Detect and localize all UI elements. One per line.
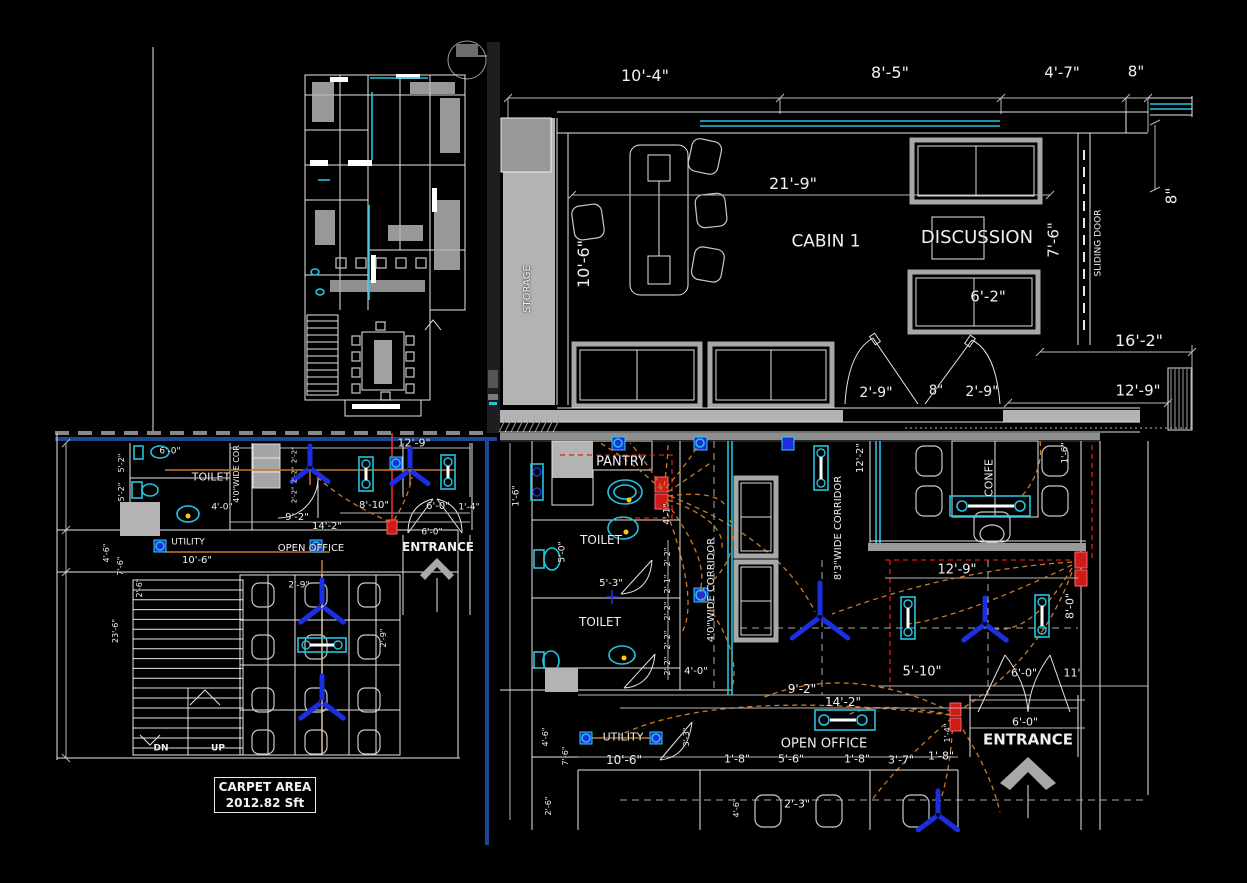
entrance-arrow: [420, 558, 454, 580]
sofa: [912, 140, 1040, 202]
dim-2-9-c: 2'-9": [288, 582, 309, 591]
dim-2-2-c2: 2'-2": [292, 467, 299, 484]
dim-4-6-d1: 4'-6": [733, 799, 741, 818]
dim-5-0-d: 5'-0": [559, 541, 568, 562]
room-label-storage: STORAGE: [523, 265, 533, 313]
ceiling-fans: [292, 446, 1006, 830]
room-label-entrance-c: ENTRANCE: [402, 541, 474, 553]
dim-2-3-d: 2'-3": [784, 799, 810, 810]
dim-5-2-b: 5'-2": [118, 483, 126, 502]
separator-bar: [487, 42, 500, 433]
dim-12-9-top: 12'-9": [1115, 384, 1160, 399]
sofa: [736, 478, 776, 556]
label-sliding-door: SLIDING DOOR: [1095, 210, 1104, 277]
dim-6-0-d1: 6'-0": [1011, 668, 1037, 679]
dim-2-1-d: 2'-1": [664, 575, 672, 594]
tube-light-icon: [441, 455, 455, 489]
dim-2-6-c: 2'-6": [136, 579, 144, 598]
room-label-openoffice-c: OPEN OFFICE: [278, 544, 345, 554]
bottom-right-plan: [314, 437, 1148, 830]
dim-21-9: 21'-9": [769, 176, 817, 192]
room-label-toilet-d2: TOILET: [579, 616, 621, 628]
dim-4-1-d: 4'-1": [664, 503, 673, 524]
mini-overview-plan: [305, 41, 486, 416]
dim-4-6-d2: 4'-6": [542, 728, 550, 747]
dim-12-9-c: 12'-9": [397, 438, 430, 449]
floorplan-linework: [0, 0, 1247, 883]
dim-10-6-d: 10'-6": [606, 754, 642, 766]
dim-23-6: 23'-6": [112, 619, 120, 643]
dim-14-2-d: 14'-2": [825, 696, 861, 708]
dim-2-2-d2: 2'-2": [664, 602, 672, 621]
dim-10-6-cabin: 10'-6": [576, 240, 592, 288]
dim-2-2-d1: 2'-2": [664, 548, 672, 567]
dim-16-2: 16'-2": [1115, 333, 1163, 349]
dim-12-9-d: 12'-9": [937, 564, 976, 577]
tube-light-icon: [901, 597, 915, 639]
dim-2-9-c2: 2'-9": [380, 629, 388, 648]
dim-1-6-d1: 1'-6": [513, 485, 522, 506]
carpet-area-value: 2012.82 Sft: [226, 796, 304, 810]
room-label-pantry: PANTRY: [596, 456, 646, 469]
cad-drawing-canvas[interactable]: 10'-4"8'-5"4'-7"8"8"21'-9"10'-6"CABIN 1D…: [0, 0, 1247, 883]
dim-11in-d: 11": [1063, 668, 1082, 679]
dim-7-6-c: 7'-6": [117, 557, 125, 576]
dim-4-6-c: 4'-6": [103, 544, 111, 563]
dim-8-10: 8'-10": [359, 501, 389, 511]
dim-1-6-d2: 1'-6": [1062, 442, 1071, 463]
junction-box-icon: [154, 540, 166, 552]
dim-5-10-d: 5'-10": [902, 666, 941, 679]
dim-6-0-d2: 6'-0": [1012, 717, 1038, 728]
dim-10-6-c: 10'-6": [182, 556, 212, 566]
dim-8-0-d: 8'-0": [1065, 593, 1076, 619]
dim-8in-top: 8": [1128, 65, 1144, 80]
room-label-openoffice-d: OPEN OFFICE: [781, 738, 867, 751]
dim-1-4-d: 1'-4": [944, 724, 952, 743]
ceiling-fan-icon: [964, 598, 1007, 640]
room-label-toilet-d1: TOILET: [580, 534, 622, 546]
dim-2-2-d3: 2'-2": [664, 631, 672, 650]
dim-3-3-d: 3'-3": [683, 728, 691, 747]
dim-2-9-a: 2'-9": [859, 386, 892, 400]
dim-1-8-d3: 1'-8": [928, 751, 954, 762]
room-label-discussion: DISCUSSION: [921, 229, 1033, 247]
dim-4-0-c: 4'-0": [211, 504, 232, 513]
label-up: UP: [211, 745, 225, 754]
dim-1-8-d1: 1'-8": [724, 754, 750, 765]
dim-5-2-a: 5'-2": [118, 454, 126, 473]
top-plan: [499, 94, 1196, 432]
sofa: [710, 344, 832, 406]
dim-2-6-d: 2'-6": [545, 797, 553, 816]
room-label-cabin1: CABIN 1: [791, 234, 860, 251]
dim-7-6-d: 7'-6": [562, 747, 570, 766]
dim-5-3-d: 5'-3": [599, 579, 623, 589]
ceiling-fan-icon: [918, 791, 957, 830]
room-label-utility-d: UTILITY: [603, 732, 644, 743]
dim-2-2-c1: 2'-2": [292, 447, 299, 464]
carpet-area-title: CARPET AREA: [219, 780, 312, 794]
dim-6-0-c3: 6'-0": [421, 529, 442, 538]
label-corridor-8ft: 8'3"WIDE CORRIDOR: [834, 476, 844, 580]
room-label-confe: CONFE: [984, 459, 995, 497]
tube-light-icon: [359, 457, 373, 491]
dim-9-2-c: 9'-2": [285, 513, 309, 523]
ceiling-fan-icon: [792, 583, 848, 638]
dim-2-2-d4: 2'-2": [664, 657, 672, 676]
sofa: [574, 344, 700, 406]
dim-5-6-d: 5'-6": [778, 754, 804, 765]
dim-14-2-c: 14'-2": [312, 522, 342, 532]
dim-7-6-right: 7'-6": [1047, 222, 1062, 258]
dim-10-4: 10'-4": [621, 68, 669, 84]
junction-box-icon: [390, 457, 402, 469]
room-label-utility-c: UTILITY: [171, 539, 204, 548]
dim-1-8-d2: 1'-8": [844, 754, 870, 765]
dim-6-0-c1: 6'-0": [159, 448, 180, 457]
label-cor-c: 4'0"WIDE COR: [233, 445, 241, 503]
tube-light-icon: [814, 446, 828, 490]
dim-6-2: 6'-2": [970, 290, 1006, 305]
label-dn: DN: [153, 745, 168, 754]
carpet-area-box: CARPET AREA 2012.82 Sft: [214, 777, 316, 813]
dim-9-2-d: 9'-2": [788, 683, 816, 695]
dim-6-0-c2: 6'-0": [426, 502, 450, 512]
dim-4-7: 4'-7": [1044, 66, 1080, 81]
dim-12-2-d: 12'-2": [856, 443, 866, 473]
room-label-toilet-c: TOILET: [192, 472, 230, 483]
dim-1-4-c: 1'-4": [458, 504, 479, 513]
staircase: [133, 580, 243, 755]
label-corridor-4ft: 4'0"WIDE CORRIDOR: [707, 538, 717, 642]
dim-2-9-b: 2'-9": [965, 385, 998, 399]
room-label-entrance-d: ENTRANCE: [983, 733, 1073, 748]
dim-8in-door: 8": [929, 385, 943, 398]
dim-4-0-d: 4'-0": [684, 667, 708, 677]
dim-2-2-c3: 2'-2": [292, 487, 299, 504]
dim-8-5: 8'-5": [871, 65, 909, 81]
dim-3-7-d: 3'-7": [888, 755, 914, 766]
dim-8in-right: 8": [1165, 188, 1180, 204]
